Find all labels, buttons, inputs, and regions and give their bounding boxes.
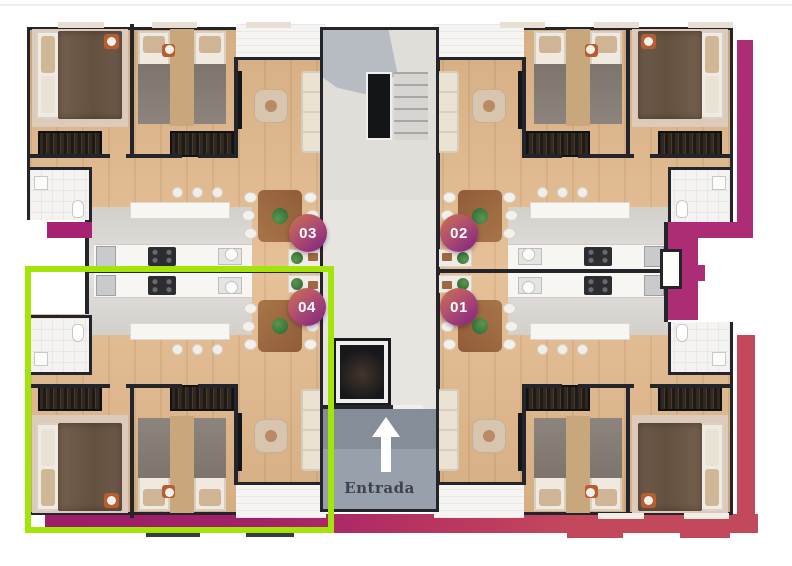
sofa [437,389,459,471]
entrance-arrow-icon [372,417,400,437]
window-sill [500,22,545,28]
chair-icon [503,228,516,239]
pillow-icon [705,429,719,466]
chair-icon [244,228,257,239]
blanket [138,64,170,124]
entrance-vestibule: Entrada [323,409,436,509]
twin-bed [534,418,566,511]
window-sill [152,22,197,28]
bathroom [668,315,730,375]
elevator [333,338,391,406]
bathroom-sink-icon [34,176,48,190]
kitchen-sink-icon [518,277,542,294]
blanket [534,64,566,124]
plant-icon [472,318,488,334]
cooktop-icon [148,247,176,266]
central-hall: Entrada [320,27,439,512]
pillow-icon [539,489,561,506]
tv-panel [518,71,522,129]
tv-panel [518,413,522,471]
stool-icon [172,187,183,198]
kitchen-counter [508,244,666,269]
unit-badge-01[interactable]: 01 [440,288,478,326]
pillow-icon [705,76,719,113]
border-accent-left-tab [47,222,92,238]
window-sill [594,22,639,28]
twin-bed [194,31,226,124]
stool-icon [557,344,568,355]
bathroom [668,167,730,227]
chair-icon [505,210,518,221]
chair-icon [443,339,456,350]
tray-icon [442,281,452,289]
chair-icon [503,192,516,203]
wall [626,384,630,518]
pillow-icon [595,36,617,53]
entrance-arrow-icon [381,436,391,472]
floor-plan: Entrada 03 02 04 01 [0,0,792,566]
window-sill [246,22,291,28]
pillow-icon [41,36,55,73]
chair-icon [505,321,518,332]
nightstand-icon [162,44,175,57]
cooktop-icon [584,247,612,266]
bathroom-sink-icon [712,352,726,366]
nightstand-icon [585,44,598,57]
window-sill [598,513,644,519]
border-accent-right-top [737,40,753,238]
stool-icon [577,187,588,198]
wall [198,154,238,158]
entrance-label: Entrada [323,479,436,497]
side-window [660,249,682,289]
blanket [590,418,622,478]
pillow-icon [199,36,221,53]
pillow-icon [705,36,719,73]
wardrobe [658,385,722,411]
window-sill [684,513,729,519]
wall [130,24,134,158]
chair-icon [242,210,255,221]
stool-icon [577,344,588,355]
stool-icon [537,344,548,355]
coffee-table [472,419,506,453]
nightstand-icon [585,485,598,498]
toilet-icon [676,200,688,218]
balcony [434,482,524,518]
wall [626,24,630,158]
nightstand-icon [104,34,119,49]
toilet-icon [72,200,84,218]
kitchen-island [530,202,630,219]
wardrobe [526,385,590,411]
kitchen-sink-icon [218,248,242,265]
wall [650,384,730,388]
wall [522,154,562,158]
unit-badge-02[interactable]: 02 [440,214,478,252]
nightstand-icon [641,493,656,508]
tray-icon [308,253,318,261]
rug-runner [566,416,590,513]
cooktop-icon [584,276,612,295]
chair-icon [503,339,516,350]
window-sill [58,22,104,28]
stool-icon [537,187,548,198]
bathroom [30,167,92,227]
coffee-table [254,89,288,123]
blanket [590,64,622,124]
kitchen-sink-icon [518,248,542,265]
chair-icon [503,303,516,314]
border-accent-tab [698,265,705,281]
wall [126,154,182,158]
wall [522,57,526,158]
border-accent-right-bottom [737,335,755,517]
sofa [437,71,459,153]
stool-icon [192,187,203,198]
pillow-icon [595,489,617,506]
stool-icon [212,187,223,198]
window-sill [688,22,733,28]
wall [522,384,562,388]
plant-icon [291,252,303,264]
kitchen-island [530,323,630,340]
chair-icon [443,192,456,203]
balcony [434,24,524,60]
wall [30,154,110,158]
stair-void [366,72,392,140]
twin-bed [534,31,566,124]
chair-icon [244,192,257,203]
staircase [323,30,436,200]
border-accent-tab [567,533,623,538]
kitchen-island [130,202,230,219]
fridge-icon [96,246,116,267]
nightstand-icon [641,34,656,49]
tv-panel [238,71,242,129]
chair-icon [304,192,317,203]
page-divider [0,4,792,6]
stair-steps [394,72,428,140]
plant-icon [457,252,469,264]
coffee-table [472,89,506,123]
blanket [534,418,566,478]
bathroom-sink-icon [712,176,726,190]
toilet-icon [676,324,688,342]
stool-icon [557,187,568,198]
border-accent-tab [680,533,730,538]
pillow-icon [705,469,719,506]
pillow-icon [539,36,561,53]
plant-icon [272,208,288,224]
elevator-shaft [340,345,384,399]
unit-badge-03[interactable]: 03 [289,214,327,252]
pillow-icon [41,76,55,113]
balcony [236,24,326,60]
tray-icon [442,253,452,261]
wall [650,154,730,158]
blanket [194,64,226,124]
highlight-outline-unit-04 [25,266,334,533]
kitchen-counter [508,273,666,298]
wall [522,384,526,485]
